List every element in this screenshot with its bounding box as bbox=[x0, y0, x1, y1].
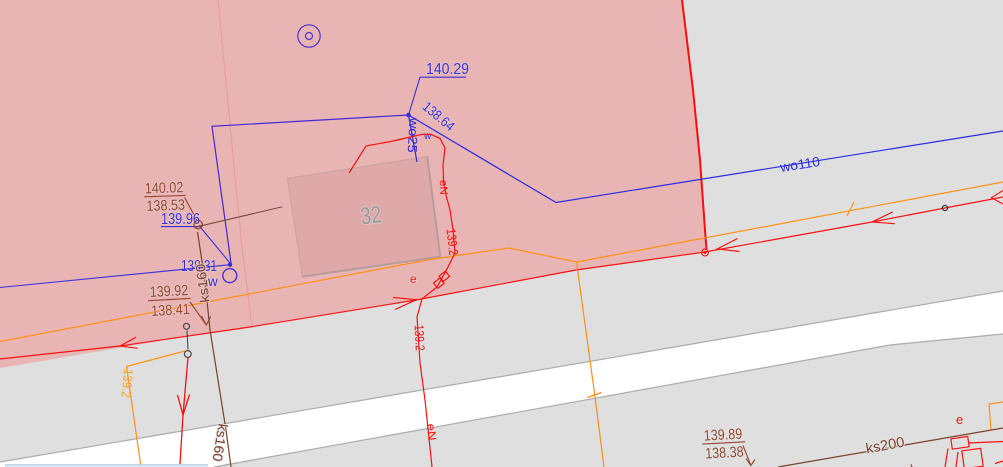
svg-text:139.2: 139.2 bbox=[118, 368, 135, 398]
svg-text:eN: eN bbox=[424, 423, 437, 441]
svg-text:139.92: 139.92 bbox=[149, 282, 188, 301]
svg-text:e: e bbox=[956, 412, 963, 427]
svg-text:140.02: 140.02 bbox=[145, 179, 184, 197]
svg-text:139.2: 139.2 bbox=[412, 324, 428, 351]
svg-text:138.41: 138.41 bbox=[151, 301, 190, 320]
svg-text:140.29: 140.29 bbox=[426, 61, 469, 78]
svg-text:138.38: 138.38 bbox=[705, 444, 744, 463]
svg-text:e: e bbox=[410, 272, 417, 286]
svg-text:32: 32 bbox=[359, 201, 383, 230]
svg-text:139.2: 139.2 bbox=[444, 228, 462, 256]
svg-text:w: w bbox=[423, 131, 432, 142]
svg-text:eN: eN bbox=[437, 180, 450, 195]
